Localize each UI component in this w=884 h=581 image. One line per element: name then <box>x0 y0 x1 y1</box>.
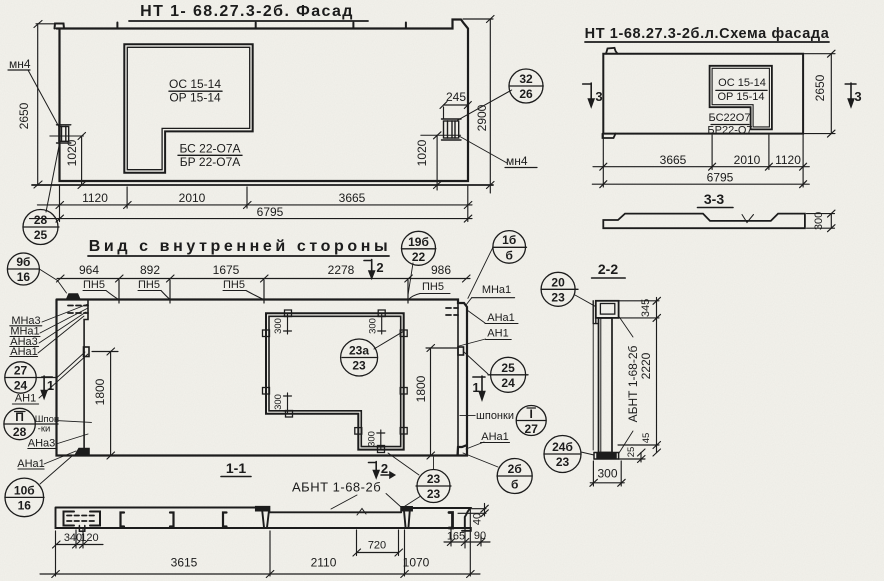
svg-text:23а: 23а <box>349 344 369 358</box>
svg-text:165: 165 <box>447 531 465 543</box>
svg-text:23: 23 <box>352 359 366 373</box>
svg-text:мн4: мн4 <box>9 57 31 71</box>
svg-text:1070: 1070 <box>403 556 430 570</box>
svg-text:-ки: -ки <box>38 424 51 435</box>
svg-text:23: 23 <box>427 472 441 486</box>
svg-text:1120: 1120 <box>82 191 108 205</box>
svg-text:2900: 2900 <box>475 104 489 131</box>
svg-text:1б: 1б <box>502 233 516 247</box>
svg-text:ПН5: ПН5 <box>138 279 160 291</box>
svg-text:24: 24 <box>501 376 515 390</box>
svg-text:2-2: 2-2 <box>598 261 618 277</box>
svg-text:1800: 1800 <box>93 378 107 405</box>
svg-text:892: 892 <box>140 263 160 277</box>
svg-text:300: 300 <box>368 318 379 334</box>
svg-text:1675: 1675 <box>213 263 240 277</box>
svg-text:300: 300 <box>273 394 284 410</box>
svg-text:25: 25 <box>626 447 637 458</box>
svg-text:23: 23 <box>427 487 441 501</box>
svg-text:245: 245 <box>446 90 466 104</box>
svg-text:ОС 15-14: ОС 15-14 <box>718 77 766 89</box>
svg-text:986: 986 <box>431 263 451 277</box>
svg-text:МНа1: МНа1 <box>482 284 511 296</box>
svg-text:2220: 2220 <box>639 352 653 379</box>
svg-text:2010: 2010 <box>734 153 761 167</box>
svg-text:ПН5: ПН5 <box>422 281 444 293</box>
svg-text:АНа1: АНа1 <box>487 312 515 324</box>
svg-text:1020: 1020 <box>415 139 429 166</box>
svg-text:345: 345 <box>640 299 652 317</box>
svg-text:300: 300 <box>597 467 617 481</box>
svg-text:БР 22-О7А: БР 22-О7А <box>180 155 241 169</box>
svg-text:16: 16 <box>18 498 32 512</box>
svg-text:I: I <box>530 407 533 421</box>
svg-text:964: 964 <box>79 263 99 277</box>
svg-text:Вид с внутренней стороны: Вид с внутренней стороны <box>89 238 392 255</box>
svg-text:мн4: мн4 <box>506 154 528 168</box>
svg-text:90: 90 <box>474 530 486 542</box>
svg-text:6795: 6795 <box>257 205 284 219</box>
svg-text:АНа1: АНа1 <box>481 431 509 443</box>
svg-text:24: 24 <box>14 379 28 393</box>
svg-text:28: 28 <box>13 425 27 439</box>
svg-text:9б: 9б <box>16 255 30 269</box>
svg-text:2010: 2010 <box>179 191 206 205</box>
svg-text:19б: 19б <box>408 235 429 249</box>
svg-text:24б: 24б <box>552 440 573 454</box>
svg-text:27: 27 <box>525 422 539 436</box>
svg-text:22: 22 <box>412 250 426 264</box>
svg-text:АН1: АН1 <box>487 328 508 340</box>
svg-text:1-1: 1-1 <box>226 460 246 476</box>
svg-text:3-3: 3-3 <box>704 191 724 207</box>
svg-text:АНа3: АНа3 <box>28 438 56 450</box>
svg-text:23: 23 <box>551 290 565 304</box>
svg-text:б: б <box>511 478 518 492</box>
svg-text:2650: 2650 <box>17 102 31 129</box>
svg-text:28: 28 <box>34 213 48 227</box>
svg-text:АБНТ 1-68-2б: АБНТ 1-68-2б <box>292 480 381 495</box>
svg-text:25: 25 <box>34 228 48 242</box>
svg-text:АНа1: АНа1 <box>17 458 45 470</box>
svg-text:НТ 1-68.27.3-2б.л.Схема фасада: НТ 1-68.27.3-2б.л.Схема фасада <box>585 26 830 42</box>
svg-text:НТ 1- 68.27.3-2б. Фасад: НТ 1- 68.27.3-2б. Фасад <box>140 3 354 20</box>
svg-text:б: б <box>505 248 512 262</box>
svg-text:2: 2 <box>381 461 388 476</box>
svg-text:300: 300 <box>813 212 825 230</box>
svg-text:ОР 15-14: ОР 15-14 <box>717 91 764 103</box>
svg-text:2278: 2278 <box>328 263 355 277</box>
svg-text:АН1: АН1 <box>15 393 36 405</box>
svg-text:БР22-О7: БР22-О7 <box>707 125 752 137</box>
svg-text:3615: 3615 <box>171 556 198 570</box>
svg-text:БС22О7: БС22О7 <box>709 112 751 124</box>
svg-text:3665: 3665 <box>660 153 687 167</box>
svg-text:АБНТ 1-68-2б: АБНТ 1-68-2б <box>626 345 640 422</box>
svg-text:1800: 1800 <box>414 375 428 402</box>
svg-text:ПН5: ПН5 <box>223 279 245 291</box>
svg-text:2110: 2110 <box>311 556 337 570</box>
svg-text:1020: 1020 <box>65 139 79 166</box>
svg-text:ОС 15-14: ОС 15-14 <box>169 77 221 91</box>
svg-text:300: 300 <box>273 318 284 334</box>
svg-text:27: 27 <box>14 364 28 378</box>
svg-text:720: 720 <box>368 540 386 552</box>
svg-text:3665: 3665 <box>339 191 366 205</box>
svg-text:6795: 6795 <box>707 171 734 185</box>
svg-text:20: 20 <box>551 275 565 289</box>
svg-text:120: 120 <box>80 532 98 544</box>
svg-text:ОР 15-14: ОР 15-14 <box>169 91 221 105</box>
svg-text:16: 16 <box>17 270 31 284</box>
svg-text:32: 32 <box>519 72 533 86</box>
svg-text:3: 3 <box>854 89 861 104</box>
svg-text:40: 40 <box>472 513 484 525</box>
svg-text:45: 45 <box>641 433 652 444</box>
svg-text:шпонки: шпонки <box>476 410 514 422</box>
svg-text:2б: 2б <box>508 462 522 476</box>
svg-text:1: 1 <box>472 380 479 395</box>
svg-text:1120: 1120 <box>775 153 801 167</box>
svg-text:300: 300 <box>367 431 378 447</box>
svg-text:10б: 10б <box>14 483 35 497</box>
svg-text:23: 23 <box>556 455 570 469</box>
svg-text:ПН5: ПН5 <box>83 279 105 291</box>
svg-text:2: 2 <box>376 260 383 275</box>
svg-text:26: 26 <box>519 87 533 101</box>
svg-text:25: 25 <box>501 361 515 375</box>
svg-text:БС 22-О7А: БС 22-О7А <box>179 142 240 156</box>
svg-text:3: 3 <box>595 89 602 104</box>
svg-text:2650: 2650 <box>813 74 827 101</box>
